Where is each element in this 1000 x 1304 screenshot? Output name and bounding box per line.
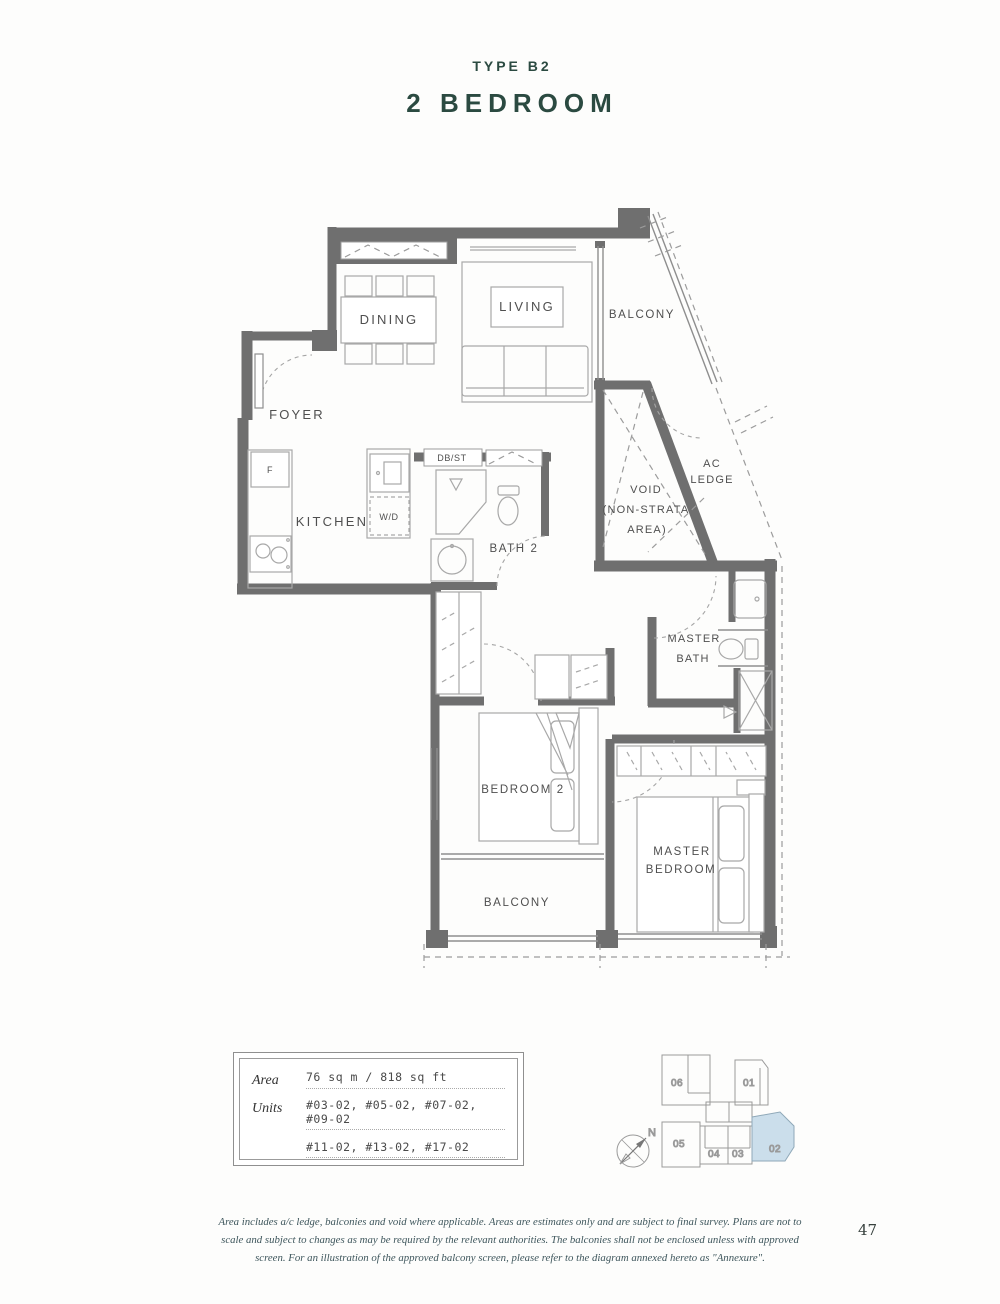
- label-master-bedroom-1: MASTER: [653, 846, 711, 858]
- label-master-bath-2: BATH: [676, 653, 709, 665]
- key-plan-unit-03: 03: [732, 1149, 744, 1160]
- area-units-box: Area 76 sq m / 818 sq ft Units #03-02, #…: [233, 1052, 524, 1166]
- disclaimer-text: Area includes a/c ledge, balconies and v…: [210, 1214, 810, 1267]
- label-master-bath-1: MASTER: [667, 633, 720, 645]
- label-void-2: (NON-STRATA: [603, 504, 690, 516]
- label-foyer: FOYER: [269, 407, 325, 422]
- area-value: 76 sq m / 818 sq ft: [306, 1070, 505, 1089]
- compass: N: [617, 1127, 656, 1167]
- entrance-door-leaf: [255, 354, 263, 408]
- label-ac-1: AC: [703, 458, 721, 470]
- key-plan-unit-05: 05: [673, 1139, 685, 1150]
- key-plan-unit-01: 01: [743, 1078, 755, 1089]
- units-label: Units: [252, 1098, 294, 1158]
- label-dining: DINING: [360, 312, 419, 327]
- label-living: LIVING: [499, 299, 555, 314]
- key-plan-unit-02: 02: [769, 1144, 781, 1155]
- compass-north-label: N: [648, 1127, 656, 1139]
- label-balcony-bottom: BALCONY: [484, 897, 550, 909]
- label-washer-dryer: W/D: [379, 512, 398, 522]
- label-bath2: BATH 2: [489, 543, 538, 555]
- key-plan-unit-06: 06: [671, 1078, 683, 1089]
- label-void-1: VOID: [630, 484, 662, 496]
- key-plan: 06 01 05 04 03 02: [662, 1055, 794, 1167]
- label-master-bedroom-2: BEDROOM: [646, 864, 717, 876]
- page-number: 47: [858, 1221, 877, 1239]
- label-ac-2: LEDGE: [690, 474, 733, 486]
- area-units-box-inner: Area 76 sq m / 818 sq ft Units #03-02, #…: [239, 1058, 518, 1160]
- units-line-1: #03-02, #05-02, #07-02, #09-02: [306, 1098, 505, 1130]
- area-label: Area: [252, 1070, 294, 1089]
- brochure-page: TYPE B2 2 BEDROOM: [0, 0, 1000, 1304]
- label-balcony-top: BALCONY: [609, 309, 675, 321]
- label-db-st: DB/ST: [437, 453, 467, 463]
- key-plan-unit-04: 04: [708, 1149, 720, 1160]
- label-bedroom2: BEDROOM 2: [481, 784, 564, 796]
- label-fridge: F: [267, 465, 273, 475]
- label-void-3: AREA): [627, 524, 667, 536]
- label-kitchen: KITCHEN: [296, 514, 368, 529]
- units-line-2: #11-02, #13-02, #17-02: [306, 1140, 505, 1158]
